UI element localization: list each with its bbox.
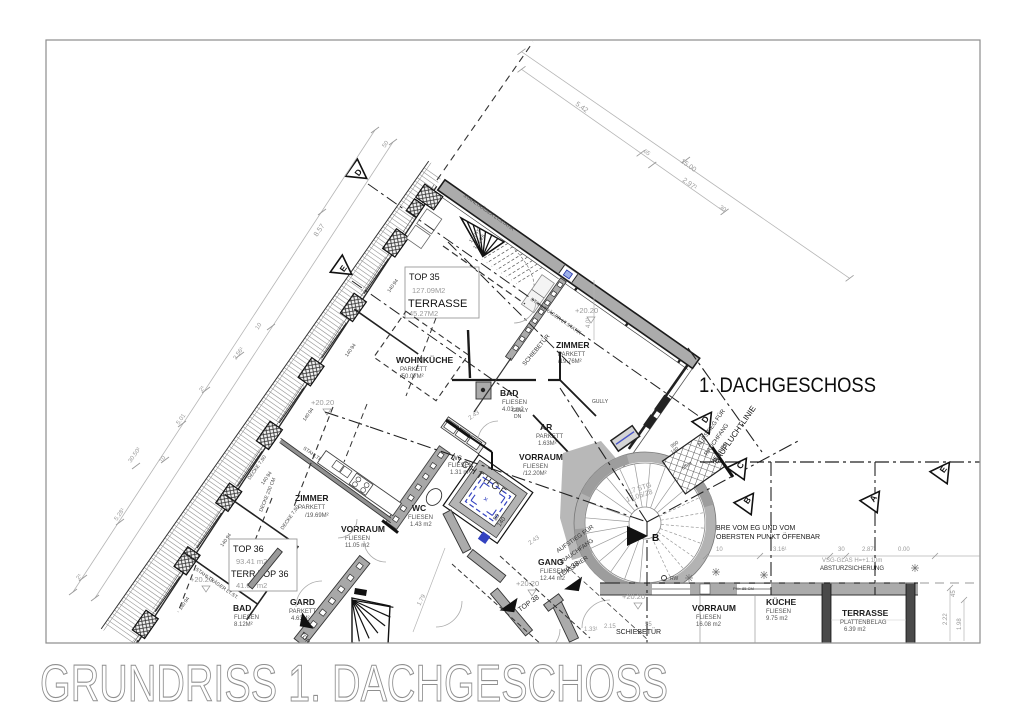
svg-text:30: 30 bbox=[838, 547, 845, 553]
svg-text:PH= 85 CM: PH= 85 CM bbox=[733, 586, 754, 591]
svg-text:PARKETT: PARKETT bbox=[298, 505, 326, 511]
svg-text:VORRAUM: VORRAUM bbox=[692, 603, 736, 613]
svg-text:TERRASSE: TERRASSE bbox=[842, 608, 889, 618]
svg-text:GRUNDRISS 1. DACHGESCHOSS: GRUNDRISS 1. DACHGESCHOSS bbox=[40, 655, 668, 713]
svg-text:/12.20M²: /12.20M² bbox=[523, 471, 547, 477]
svg-text:+20.20: +20.20 bbox=[311, 398, 334, 407]
svg-text:FLIESEN: FLIESEN bbox=[234, 615, 259, 621]
svg-text:+20.20: +20.20 bbox=[622, 592, 645, 601]
svg-text:PARKETT: PARKETT bbox=[536, 434, 564, 440]
svg-text:45.27M2: 45.27M2 bbox=[409, 309, 438, 318]
svg-text:GULLY: GULLY bbox=[592, 399, 609, 405]
svg-text:3.16¹: 3.16¹ bbox=[773, 547, 787, 553]
svg-text:WOHNKÜCHE: WOHNKÜCHE bbox=[396, 355, 453, 365]
svg-text:FLIESEN: FLIESEN bbox=[523, 464, 548, 470]
svg-text:FLIESEN: FLIESEN bbox=[448, 463, 473, 469]
svg-text:FLIESEN: FLIESEN bbox=[502, 400, 527, 406]
svg-text:ZIMMER: ZIMMER bbox=[556, 340, 590, 350]
svg-text:+20.20: +20.20 bbox=[575, 306, 598, 315]
svg-text:93.41 m2: 93.41 m2 bbox=[236, 557, 267, 566]
svg-text:2.15: 2.15 bbox=[604, 624, 616, 630]
svg-text:FLIESEN: FLIESEN bbox=[345, 536, 370, 542]
svg-text:1.63M²: 1.63M² bbox=[538, 441, 557, 447]
svg-text:B: B bbox=[652, 533, 659, 544]
svg-text:RW: RW bbox=[670, 576, 679, 582]
svg-text:FLIESEN: FLIESEN bbox=[408, 515, 433, 521]
svg-text:ZIMMER: ZIMMER bbox=[295, 493, 329, 503]
svg-text:BRE VOM EG UND VOM: BRE VOM EG UND VOM bbox=[716, 525, 796, 532]
svg-text:/50.07M²: /50.07M² bbox=[400, 374, 424, 380]
svg-text:8.12M²: 8.12M² bbox=[234, 622, 253, 628]
svg-text:1.98: 1.98 bbox=[957, 618, 963, 630]
svg-text:FLIESEN: FLIESEN bbox=[766, 609, 791, 615]
svg-text:PARKETT: PARKETT bbox=[400, 367, 428, 373]
svg-text:PARKETT: PARKETT bbox=[558, 352, 586, 358]
svg-text:2.87¹: 2.87¹ bbox=[862, 547, 876, 553]
svg-text:GARD: GARD bbox=[290, 597, 315, 607]
svg-text:0.00: 0.00 bbox=[898, 547, 910, 553]
svg-text:55: 55 bbox=[645, 622, 652, 628]
svg-text:BAD: BAD bbox=[233, 603, 251, 613]
svg-text:OBERSTEN PUNKT ÖFFENBAR: OBERSTEN PUNKT ÖFFENBAR bbox=[716, 533, 820, 541]
svg-text:+20.20: +20.20 bbox=[516, 579, 539, 588]
svg-text:WC: WC bbox=[412, 503, 426, 513]
svg-text:9.75 m2: 9.75 m2 bbox=[766, 616, 788, 622]
svg-text:KÜCHE: KÜCHE bbox=[766, 597, 797, 607]
svg-text:DN: DN bbox=[514, 414, 522, 420]
svg-text:VORRAUM: VORRAUM bbox=[341, 524, 385, 534]
svg-text:VORRAUM: VORRAUM bbox=[519, 452, 563, 462]
svg-text:10: 10 bbox=[716, 547, 723, 553]
svg-text:/19.69M²: /19.69M² bbox=[305, 513, 329, 519]
svg-text:FLIESEN: FLIESEN bbox=[696, 615, 721, 621]
svg-text:1.33¹: 1.33¹ bbox=[584, 627, 598, 633]
svg-text:VSG-GLAS H=+1.10m: VSG-GLAS H=+1.10m bbox=[822, 558, 882, 564]
svg-text:WC: WC bbox=[452, 456, 463, 462]
svg-text:1. DACHGESCHOSS: 1. DACHGESCHOSS bbox=[699, 373, 876, 397]
svg-text:2.22: 2.22 bbox=[943, 613, 949, 625]
svg-text:GANG: GANG bbox=[538, 557, 564, 567]
svg-text:1.43 m2: 1.43 m2 bbox=[410, 522, 432, 528]
svg-text:16.08 m2: 16.08 m2 bbox=[696, 622, 722, 628]
svg-text:TOP 36: TOP 36 bbox=[233, 544, 264, 554]
svg-text:127.09M2: 127.09M2 bbox=[412, 286, 445, 295]
svg-text:6.39 m2: 6.39 m2 bbox=[844, 627, 866, 633]
svg-text:1.31 m²: 1.31 m² bbox=[450, 470, 470, 476]
svg-text:TOP 35: TOP 35 bbox=[409, 272, 440, 282]
svg-text:SCHIEBETÜR: SCHIEBETÜR bbox=[616, 628, 661, 636]
svg-text:PLATTENBELAG: PLATTENBELAG bbox=[840, 620, 887, 626]
svg-text:11.05 m2: 11.05 m2 bbox=[345, 543, 370, 549]
svg-text:45: 45 bbox=[951, 590, 957, 597]
